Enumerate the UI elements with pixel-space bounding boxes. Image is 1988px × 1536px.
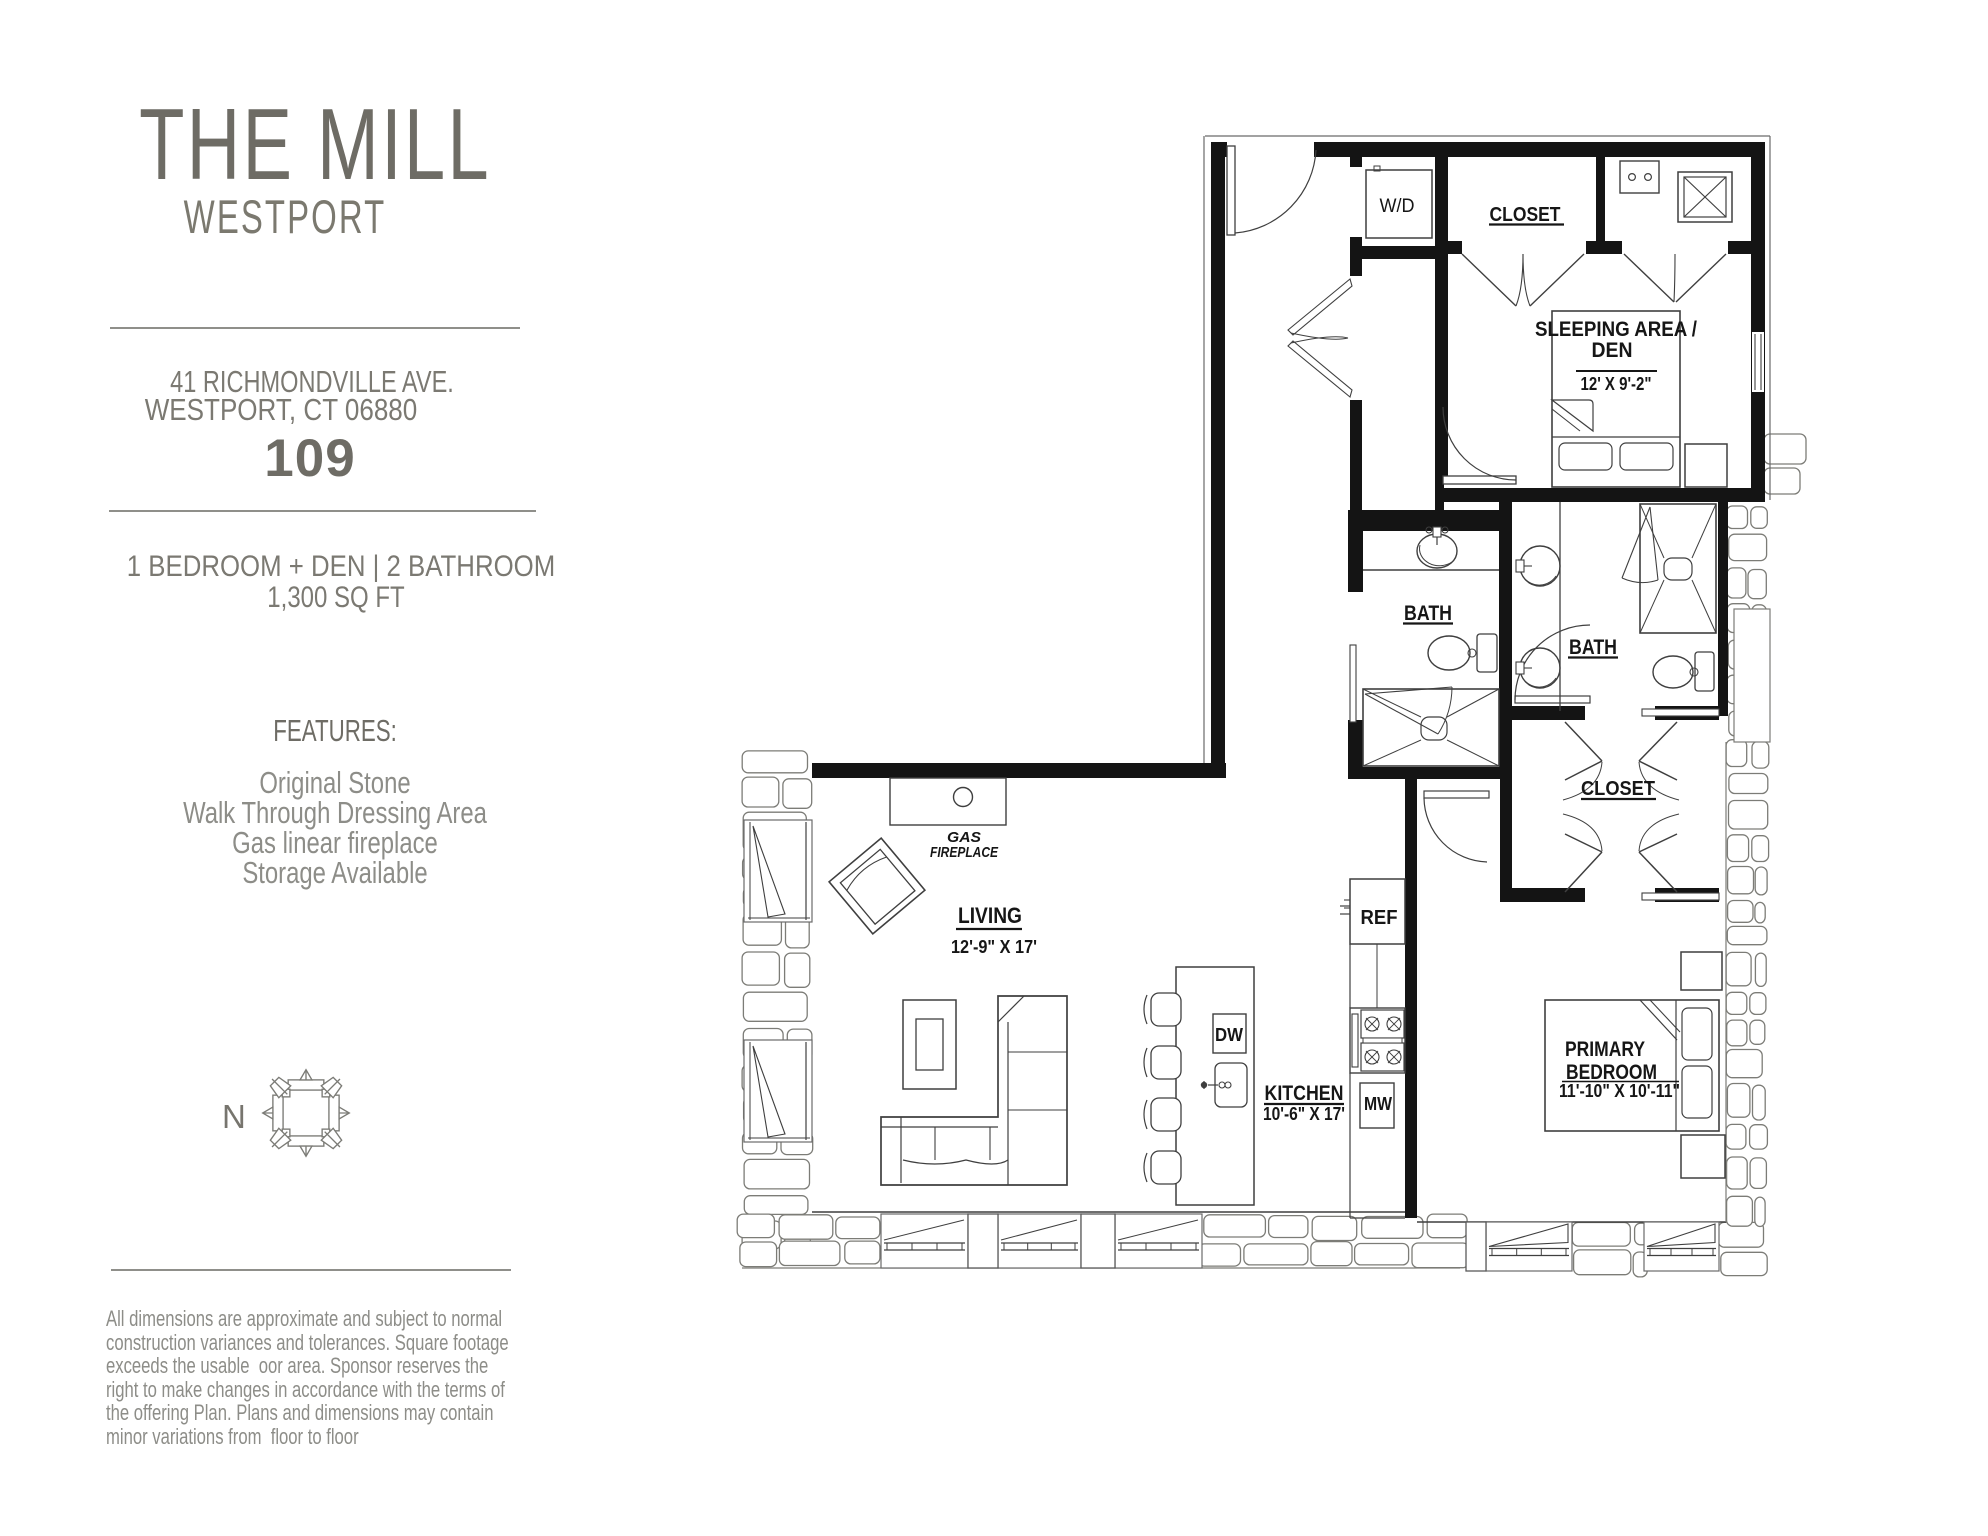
svg-text:MW: MW [1364,1094,1392,1114]
svg-text:REF: REF [1361,907,1398,929]
svg-text:LIVING: LIVING [958,903,1022,928]
svg-text:12' X 9'-2": 12' X 9'-2" [1581,374,1652,394]
svg-text:BATH: BATH [1569,636,1617,659]
svg-text:W/D: W/D [1380,196,1415,217]
svg-text:KITCHEN: KITCHEN [1265,1082,1344,1105]
svg-text:SLEEPING AREA /: SLEEPING AREA / [1535,318,1697,341]
svg-text:CLOSET: CLOSET [1581,778,1655,800]
svg-text:PRIMARY: PRIMARY [1565,1038,1645,1061]
svg-text:BATH: BATH [1404,602,1452,625]
svg-text:DW: DW [1215,1025,1243,1045]
svg-text:10'-6" X 17': 10'-6" X 17' [1263,1104,1345,1124]
svg-text:11'-10" X 10'-11": 11'-10" X 10'-11" [1559,1081,1680,1101]
svg-text:DEN: DEN [1592,339,1633,362]
svg-text:FIREPLACE: FIREPLACE [930,844,999,861]
svg-text:12'-9" X 17': 12'-9" X 17' [951,937,1037,957]
svg-text:CLOSET: CLOSET [1490,204,1561,226]
